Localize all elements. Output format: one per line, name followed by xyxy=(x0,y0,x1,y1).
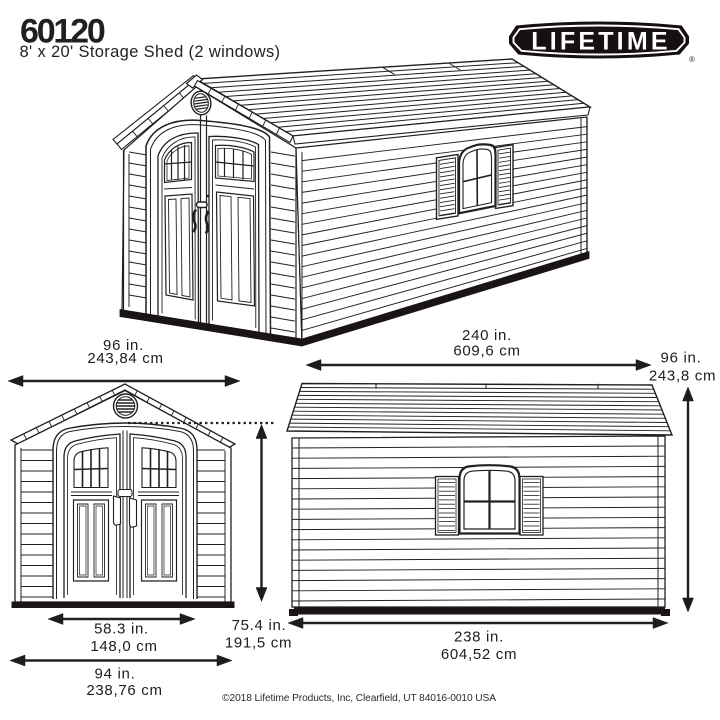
svg-text:243,8 cm: 243,8 cm xyxy=(649,368,716,385)
svg-text:96 in.: 96 in. xyxy=(661,350,702,367)
svg-text:238,76 cm: 238,76 cm xyxy=(86,682,162,699)
svg-text:238 in.: 238 in. xyxy=(454,629,504,646)
svg-text:8' x 20' Storage Shed (2 windo: 8' x 20' Storage Shed (2 windows) xyxy=(20,43,281,61)
svg-text:191,5 cm: 191,5 cm xyxy=(225,635,292,652)
svg-text:LIFETIME: LIFETIME xyxy=(531,28,670,56)
svg-text:609,6 cm: 609,6 cm xyxy=(453,343,520,360)
svg-text:240 in.: 240 in. xyxy=(462,327,512,344)
svg-text:243,84 cm: 243,84 cm xyxy=(87,350,163,367)
svg-text:©2018 Lifetime Products, Inc,: ©2018 Lifetime Products, Inc, Clearfield… xyxy=(222,693,496,704)
svg-text:604,52 cm: 604,52 cm xyxy=(441,646,517,663)
svg-text:®: ® xyxy=(689,55,695,64)
svg-text:94 in.: 94 in. xyxy=(95,666,136,683)
svg-text:58.3 in.: 58.3 in. xyxy=(94,621,149,638)
svg-text:75.4 in.: 75.4 in. xyxy=(232,617,287,634)
svg-text:148,0 cm: 148,0 cm xyxy=(90,638,157,655)
